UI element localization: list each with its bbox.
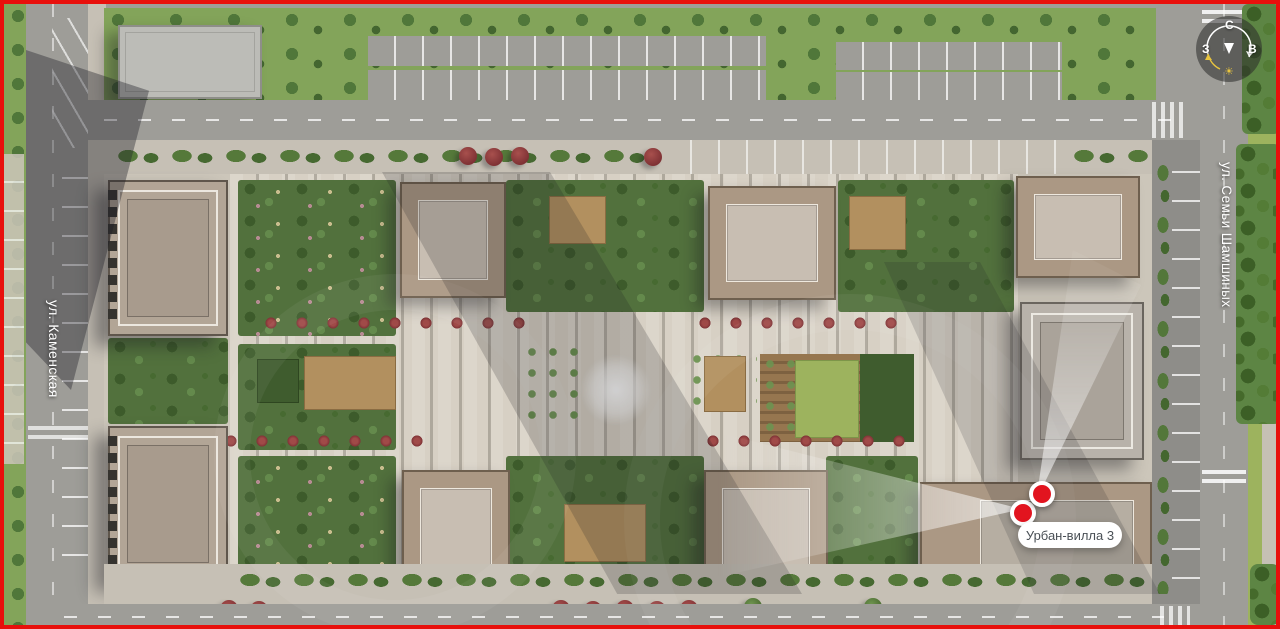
compass-west-label: З bbox=[1202, 42, 1210, 56]
utility-building-roof bbox=[125, 32, 255, 92]
villa-rooftop bbox=[418, 200, 488, 280]
villa-top-1 bbox=[400, 182, 506, 298]
villa-rooftop bbox=[1034, 194, 1122, 260]
highlight-label-text: Урбан-вилла 3 bbox=[1026, 528, 1114, 543]
lawn-square bbox=[795, 360, 859, 438]
parking-lot-b bbox=[836, 42, 1062, 70]
tower-building-1 bbox=[108, 180, 228, 336]
red-tree bbox=[644, 148, 662, 166]
road-bottom-crosswalk bbox=[1160, 606, 1190, 627]
tower-roof-core bbox=[127, 199, 209, 317]
deck-terrace bbox=[704, 356, 746, 412]
red-tree bbox=[459, 147, 477, 165]
right-tree-corner bbox=[1250, 564, 1280, 625]
red-tree bbox=[485, 148, 503, 166]
hedges-top-left bbox=[110, 142, 660, 172]
villa-rooftop bbox=[726, 204, 818, 282]
tower-building-2 bbox=[108, 426, 228, 582]
tower-building-right bbox=[1020, 302, 1144, 460]
road-bottom-centerline bbox=[64, 616, 1164, 618]
highlight-marker-2[interactable] bbox=[1029, 481, 1055, 507]
pool-square bbox=[257, 359, 299, 403]
tower-balconies bbox=[108, 190, 117, 326]
masterplan-scene: Урбан-вилла 3 С З В ☀ ул. Каменская ул. … bbox=[0, 0, 1280, 629]
parking-lot-a bbox=[368, 36, 766, 66]
villa-top-3 bbox=[1016, 176, 1140, 278]
hedges-bottom bbox=[232, 566, 1152, 596]
compass-north-label: С bbox=[1225, 18, 1234, 32]
deck-terrace bbox=[304, 356, 396, 410]
red-tree-row bbox=[256, 310, 526, 338]
deck-terrace bbox=[849, 196, 906, 250]
tower-roof-core bbox=[127, 445, 209, 563]
parking-stalls-top-right bbox=[664, 140, 1064, 174]
red-tree-row bbox=[690, 310, 916, 338]
villa-rooftop bbox=[722, 488, 810, 570]
compass-rose: С З В ☀ bbox=[1196, 16, 1262, 82]
street-right-crosswalk-mid bbox=[1202, 470, 1246, 484]
deck-terrace bbox=[549, 196, 606, 244]
fountain-mist bbox=[580, 354, 652, 426]
street-right-centerline bbox=[1223, 4, 1225, 625]
compass-east-label: В bbox=[1248, 42, 1257, 56]
highlight-label-pill[interactable]: Урбан-вилла 3 bbox=[1018, 522, 1122, 548]
garden-between-towers bbox=[108, 338, 228, 424]
red-tree-row bbox=[698, 428, 910, 456]
villa-rooftop bbox=[420, 488, 492, 570]
road-top-centerline bbox=[104, 119, 1184, 121]
red-tree bbox=[511, 147, 529, 165]
right-tree-band bbox=[1236, 144, 1280, 424]
bosquet-grid bbox=[522, 342, 582, 420]
street-left-crosswalk bbox=[28, 426, 88, 444]
compass-pointer-icon bbox=[1224, 43, 1234, 54]
hedges-top-right bbox=[1066, 142, 1154, 172]
tower-balconies bbox=[108, 436, 117, 572]
sun-icon: ☀ bbox=[1224, 65, 1234, 78]
tower-roof-core bbox=[1040, 322, 1124, 440]
street-left-angled-parking bbox=[52, 18, 88, 148]
left-edge-parking bbox=[4, 154, 24, 464]
road-top-crosswalk bbox=[1152, 102, 1188, 138]
utility-building bbox=[118, 25, 262, 99]
street-label-left: ул. Каменская bbox=[46, 300, 62, 398]
red-tree-row bbox=[216, 428, 426, 456]
right-parking-hedges bbox=[1152, 154, 1174, 594]
right-parking-stalls bbox=[1172, 144, 1200, 600]
deck-terrace bbox=[564, 504, 646, 562]
villa-top-2 bbox=[708, 186, 836, 300]
street-left-parking-stalls bbox=[62, 150, 88, 564]
street-label-right: ул. Семьи Шамшиных bbox=[1219, 162, 1234, 307]
